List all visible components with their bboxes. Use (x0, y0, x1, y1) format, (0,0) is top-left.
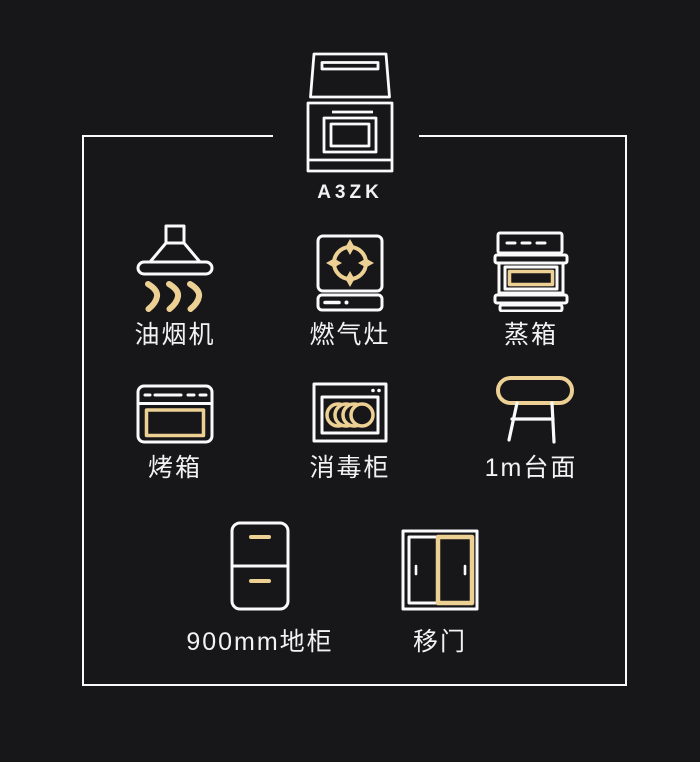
disinfection-cabinet-icon (312, 382, 388, 444)
base-cabinet-icon (230, 521, 290, 611)
item-base-cabinet: 900mm地柜 (170, 521, 350, 657)
range-hood-icon (125, 222, 225, 312)
item-disinfection-cabinet: 消毒柜 (260, 380, 440, 483)
item-label: 900mm地柜 (186, 629, 333, 657)
item-countertop: 1m台面 (441, 380, 621, 483)
infographic-canvas: A3ZK 油烟机 (0, 0, 700, 762)
item-range-hood: 油烟机 (85, 224, 265, 350)
item-gas-stove: 燃气灶 (260, 224, 440, 350)
steam-oven-icon (493, 230, 569, 312)
model-name: A3ZK (317, 182, 383, 204)
sliding-door-icon (401, 529, 479, 611)
item-label: 1m台面 (485, 455, 578, 483)
item-label: 烤箱 (148, 455, 202, 483)
oven-icon (136, 384, 214, 444)
item-label: 移门 (413, 629, 467, 657)
item-label: 蒸箱 (504, 322, 558, 350)
item-label: 油烟机 (134, 322, 215, 350)
item-sliding-door: 移门 (350, 521, 530, 657)
item-label: 燃气灶 (309, 322, 390, 350)
item-steam-oven: 蒸箱 (441, 224, 621, 350)
item-oven: 烤箱 (85, 380, 265, 483)
model-hero: A3ZK (260, 53, 440, 204)
countertop-icon (486, 376, 576, 444)
gas-stove-icon (316, 234, 384, 312)
item-label: 消毒柜 (309, 455, 390, 483)
integrated-stove-icon (305, 51, 395, 173)
